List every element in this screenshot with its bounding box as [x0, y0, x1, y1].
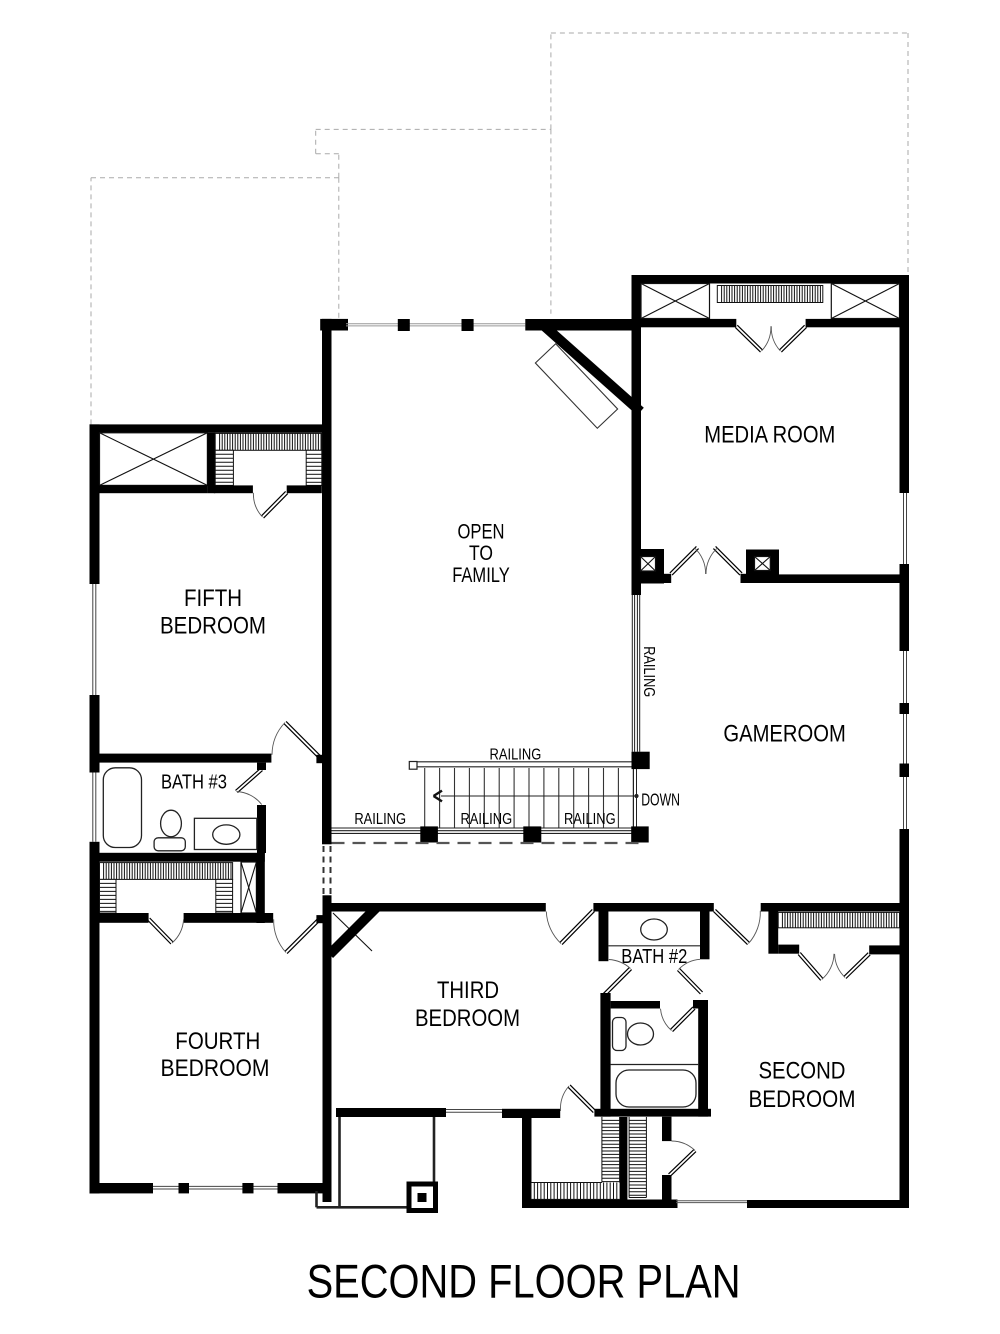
svg-text:FAMILY: FAMILY: [452, 564, 510, 587]
svg-text:RAILING: RAILING: [354, 811, 406, 828]
svg-text:SECOND FLOOR PLAN: SECOND FLOOR PLAN: [307, 1254, 741, 1307]
svg-text:BEDROOM: BEDROOM: [415, 1005, 520, 1032]
svg-text:FIFTH: FIFTH: [184, 585, 242, 612]
svg-text:SECOND: SECOND: [759, 1058, 846, 1085]
svg-text:GAMEROOM: GAMEROOM: [723, 720, 845, 747]
svg-text:MEDIA ROOM: MEDIA ROOM: [704, 422, 835, 449]
svg-text:RAILING: RAILING: [640, 646, 657, 697]
svg-text:BEDROOM: BEDROOM: [161, 1055, 270, 1082]
svg-text:RAILING: RAILING: [460, 811, 512, 828]
svg-text:TO: TO: [469, 542, 493, 565]
svg-text:OPEN: OPEN: [458, 520, 505, 543]
svg-text:BATH #3: BATH #3: [161, 771, 227, 793]
svg-text:FOURTH: FOURTH: [175, 1028, 260, 1055]
svg-text:BEDROOM: BEDROOM: [749, 1086, 856, 1113]
svg-text:RAILING: RAILING: [490, 746, 542, 763]
svg-text:THIRD: THIRD: [437, 977, 499, 1004]
svg-text:BATH #2: BATH #2: [621, 946, 687, 968]
svg-text:DOWN: DOWN: [641, 789, 680, 809]
svg-text:RAILING: RAILING: [564, 811, 616, 828]
svg-text:BEDROOM: BEDROOM: [160, 613, 266, 640]
